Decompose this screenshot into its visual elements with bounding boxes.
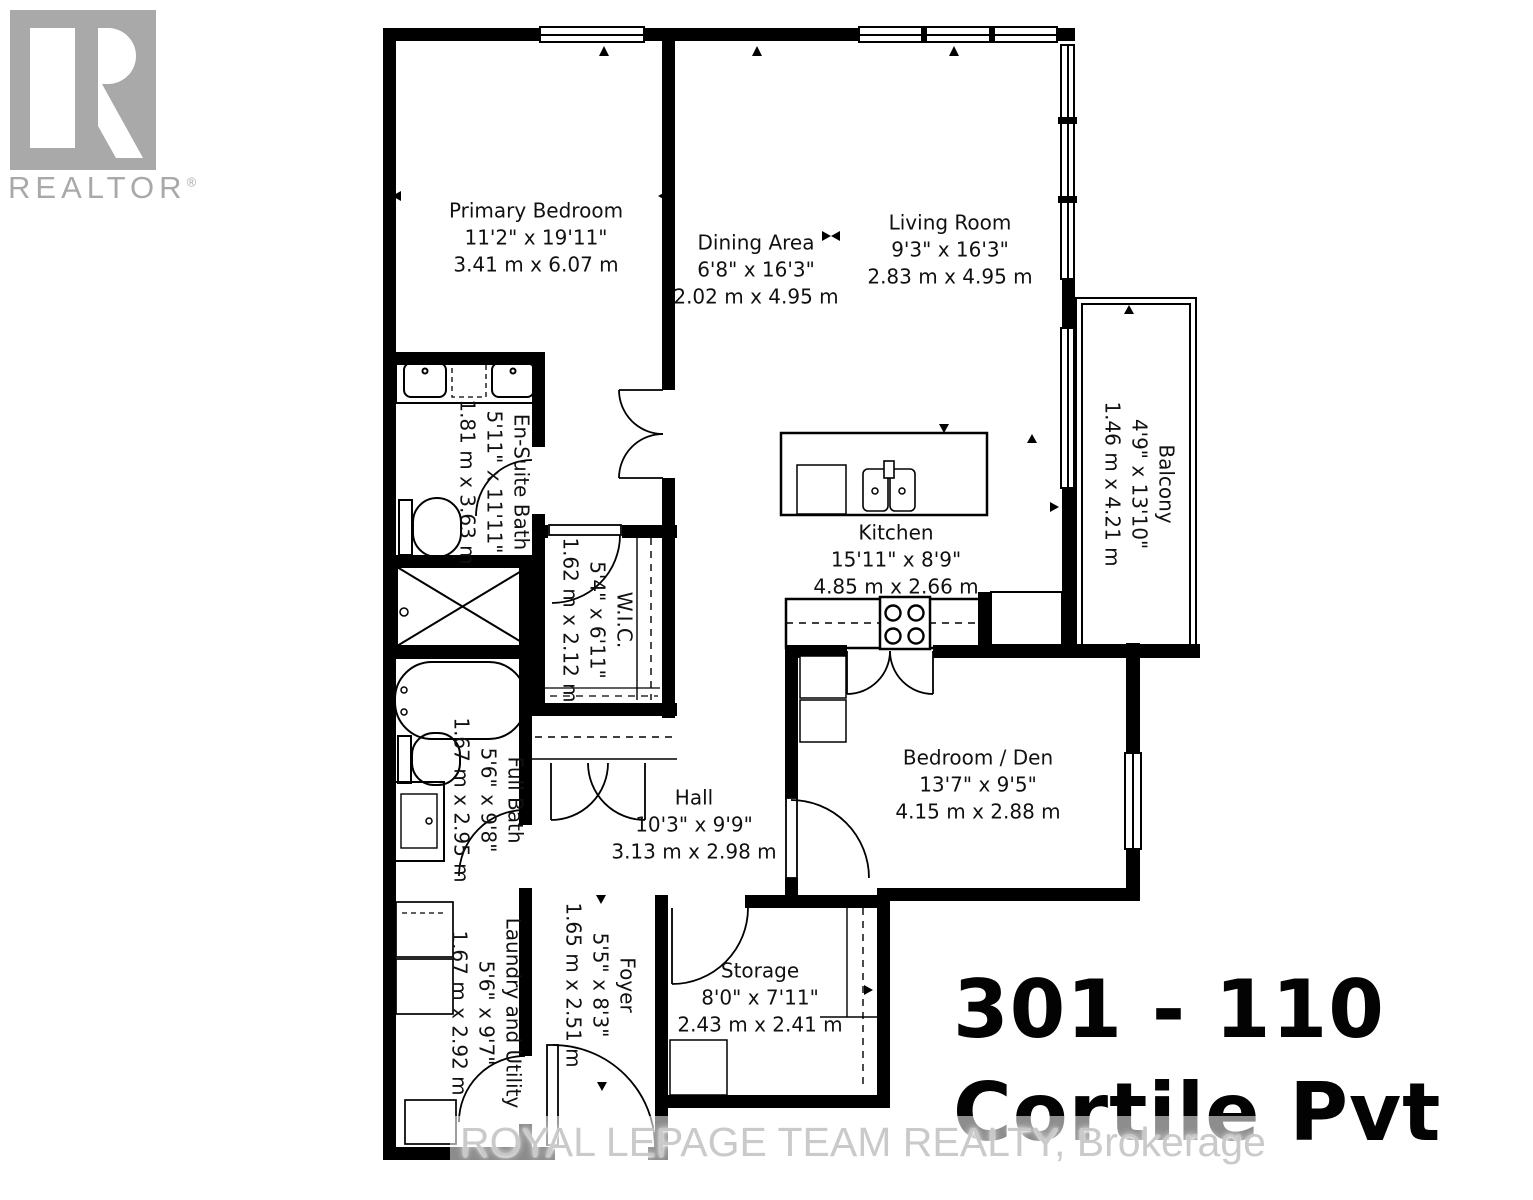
room-name: En-Suite Bath [508,399,535,564]
room-label-storage: Storage 8'0" x 7'11" 2.43 m x 2.41 m [677,958,842,1039]
realtor-logo-wordmark: REALTOR® [8,170,196,206]
room-dim-metric: 3.41 m x 6.07 m [449,252,623,279]
room-label-bedroom-den: Bedroom / Den 13'7" x 9'5" 4.15 m x 2.88… [895,745,1060,826]
room-label-foyer: Foyer 5'5" x 8'3" 1.65 m x 2.51 m [560,902,641,1067]
realtor-logo-text: REALTOR [8,170,187,205]
room-dim-imperial: 4'9" x 13'10" [1126,401,1153,566]
room-name: Living Room [867,210,1032,237]
room-dim-metric: 1.81 m x 3.63 m [454,399,481,564]
room-label-wic: W.I.C. 5'4" x 6'11" 1.62 m x 2.12 m [557,537,638,702]
room-label-balcony: Balcony 4'9" x 13'10" 1.46 m x 4.21 m [1099,401,1180,566]
room-name: Full Bath [502,717,529,882]
room-label-laundry: Laundry and Utility 5'6" x 9'7" 1.67 m x… [446,918,527,1109]
room-dim-metric: 1.62 m x 2.12 m [557,537,584,702]
room-dim-imperial: 8'0" x 7'11" [677,985,842,1012]
room-label-kitchen: Kitchen 15'11" x 8'9" 4.85 m x 2.66 m [813,520,978,601]
brokerage-watermark: ROYAL LEPAGE TEAM REALTY, Brokerage [450,1116,1276,1169]
address-line-1: 301 - 110 [953,958,1441,1061]
room-dim-imperial: 5'6" x 9'8" [475,717,502,882]
room-dim-imperial: 5'5" x 8'3" [587,902,614,1067]
room-dim-metric: 2.43 m x 2.41 m [677,1012,842,1039]
floorplan-canvas: REALTOR® [0,0,1533,1200]
room-label-ensuite-bath: En-Suite Bath 5'11" x 11'11" 1.81 m x 3.… [454,399,535,564]
room-label-hall: Hall 10'3" x 9'9" 3.13 m x 2.98 m [611,785,776,866]
room-dim-imperial: 9'3" x 16'3" [867,237,1032,264]
room-dim-metric: 1.67 m x 2.92 m [446,918,473,1109]
room-name: Storage [677,958,842,985]
registered-mark: ® [187,175,197,190]
room-dim-metric: 2.02 m x 4.95 m [673,284,838,311]
room-dim-imperial: 5'4" x 6'11" [584,537,611,702]
room-dim-imperial: 13'7" x 9'5" [895,772,1060,799]
room-dim-imperial: 5'11" x 11'11" [481,399,508,564]
room-dim-metric: 1.67 m x 2.95 m [448,717,475,882]
room-name: Hall [611,785,776,812]
room-name: Laundry and Utility [500,918,527,1109]
room-name: Bedroom / Den [895,745,1060,772]
room-name: Dining Area [673,230,838,257]
room-name: Foyer [614,902,641,1067]
room-label-primary-bedroom: Primary Bedroom 11'2" x 19'11" 3.41 m x … [449,198,623,279]
room-name: Primary Bedroom [449,198,623,225]
realtor-logo-icon [10,10,156,170]
room-dim-imperial: 11'2" x 19'11" [449,225,623,252]
room-label-full-bath: Full Bath 5'6" x 9'8" 1.67 m x 2.95 m [448,717,529,882]
room-dim-imperial: 5'6" x 9'7" [473,918,500,1109]
room-label-living-room: Living Room 9'3" x 16'3" 2.83 m x 4.95 m [867,210,1032,291]
room-dim-metric: 1.46 m x 4.21 m [1099,401,1126,566]
room-name: Balcony [1153,401,1180,566]
room-dim-metric: 4.15 m x 2.88 m [895,799,1060,826]
room-label-dining-area: Dining Area 6'8" x 16'3" 2.02 m x 4.95 m [673,230,838,311]
room-dim-metric: 3.13 m x 2.98 m [611,839,776,866]
room-dim-imperial: 10'3" x 9'9" [611,812,776,839]
room-dim-metric: 2.83 m x 4.95 m [867,264,1032,291]
room-dim-imperial: 6'8" x 16'3" [673,257,838,284]
room-dim-metric: 4.85 m x 2.66 m [813,574,978,601]
room-dim-imperial: 15'11" x 8'9" [813,547,978,574]
room-name: W.I.C. [611,537,638,702]
room-dim-metric: 1.65 m x 2.51 m [560,902,587,1067]
room-name: Kitchen [813,520,978,547]
